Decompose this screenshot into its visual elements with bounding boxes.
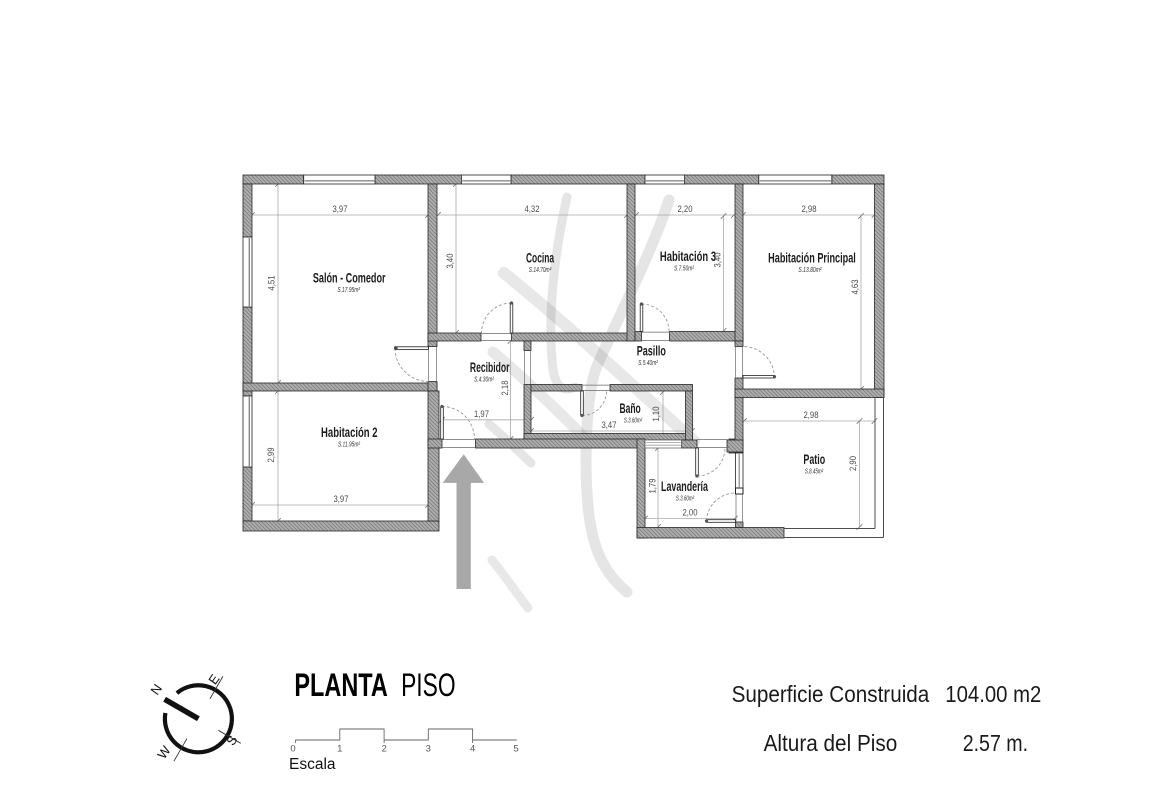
svg-text:S.7.50m²: S.7.50m² xyxy=(674,264,695,272)
svg-text:2,18: 2,18 xyxy=(499,380,510,395)
svg-text:S.3.60m²: S.3.60m² xyxy=(676,494,695,502)
svg-text:Salón - Comedor: Salón - Comedor xyxy=(313,272,386,286)
svg-text:3,47: 3,47 xyxy=(602,419,617,430)
svg-text:Cocina: Cocina xyxy=(526,252,555,266)
svg-text:Lavandería: Lavandería xyxy=(661,480,708,494)
svg-text:S.17.95m²: S.17.95m² xyxy=(337,286,360,294)
svg-text:2,20: 2,20 xyxy=(678,203,693,214)
svg-text:2.57 m.: 2.57 m. xyxy=(963,730,1028,756)
svg-text:5: 5 xyxy=(513,744,518,755)
svg-text:S.14.70m²: S.14.70m² xyxy=(529,266,552,274)
svg-text:2,90: 2,90 xyxy=(847,456,858,471)
svg-text:Baño: Baño xyxy=(619,402,640,416)
svg-text:4,51: 4,51 xyxy=(266,275,277,290)
svg-text:2,98: 2,98 xyxy=(804,409,819,420)
svg-text:S.8.45m²: S.8.45m² xyxy=(805,467,824,475)
svg-text:Pasillo: Pasillo xyxy=(637,345,666,359)
svg-text:104.00 m2: 104.00 m2 xyxy=(945,681,1041,707)
svg-text:1: 1 xyxy=(337,744,342,755)
svg-text:PLANTA: PLANTA xyxy=(294,667,387,703)
svg-text:1,10: 1,10 xyxy=(650,406,661,421)
svg-text:S.11.95m²: S.11.95m² xyxy=(338,440,361,448)
svg-text:3,97: 3,97 xyxy=(334,493,349,504)
svg-text:2,99: 2,99 xyxy=(265,447,276,462)
svg-text:Recibidor: Recibidor xyxy=(470,361,510,375)
svg-text:2: 2 xyxy=(381,744,386,755)
svg-text:Habitación 2: Habitación 2 xyxy=(321,425,378,440)
svg-text:4: 4 xyxy=(470,744,475,755)
svg-text:S.3.60m²: S.3.60m² xyxy=(624,416,643,424)
svg-text:4,32: 4,32 xyxy=(525,203,540,214)
svg-text:1,97: 1,97 xyxy=(474,408,489,419)
svg-text:PISO: PISO xyxy=(401,667,456,703)
svg-text:1,79: 1,79 xyxy=(647,478,658,493)
svg-text:2,98: 2,98 xyxy=(802,203,817,214)
svg-text:2,00: 2,00 xyxy=(683,507,698,518)
svg-text:S.4.30m²: S.4.30m² xyxy=(474,375,494,383)
svg-text:3: 3 xyxy=(426,744,431,755)
svg-text:0: 0 xyxy=(290,744,295,755)
svg-text:Habitación Principal: Habitación Principal xyxy=(768,252,856,266)
svg-text:Altura del Piso: Altura del Piso xyxy=(764,730,898,756)
svg-text:Superficie Construida: Superficie Construida xyxy=(732,681,930,707)
svg-text:3,40: 3,40 xyxy=(712,252,723,267)
svg-text:3,40: 3,40 xyxy=(444,253,455,268)
svg-text:S.13.80m²: S.13.80m² xyxy=(798,266,822,274)
svg-text:Escala: Escala xyxy=(289,756,336,773)
svg-text:Habitación 3: Habitación 3 xyxy=(660,249,717,264)
svg-text:Patio: Patio xyxy=(803,453,825,467)
svg-text:S.5.40m²: S.5.40m² xyxy=(638,359,658,367)
svg-text:4,63: 4,63 xyxy=(849,279,860,294)
svg-text:3,97: 3,97 xyxy=(333,203,348,214)
